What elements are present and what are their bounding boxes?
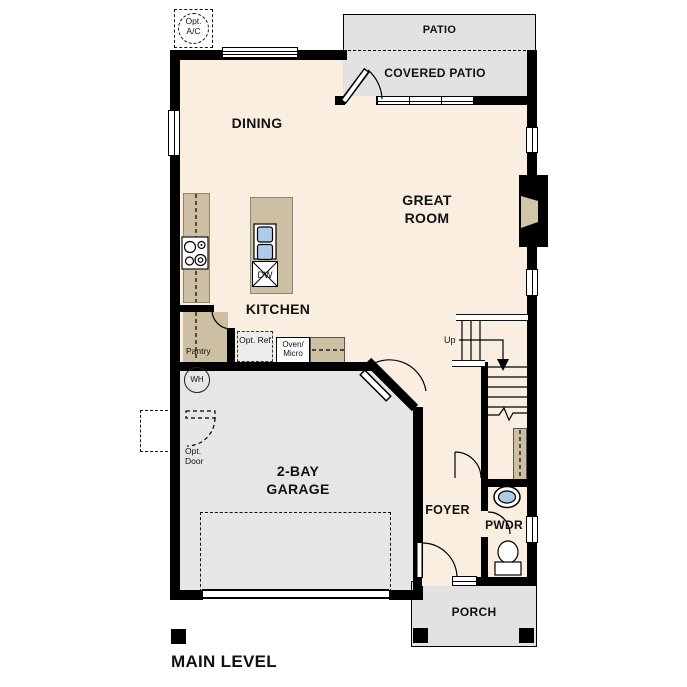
label-opt-ac: Opt. A/C [178,17,209,37]
porch-post-right [519,628,534,643]
dining-top-window [222,47,298,58]
label-covered-patio: COVERED PATIO [343,66,527,82]
label-main-level: MAIN LEVEL [171,651,277,673]
label-up: Up [444,335,456,345]
kitchen-counter-right [310,337,345,363]
wall-powder-west-upper [481,487,488,511]
dining-left-window [168,110,180,156]
great-room-right-window-1 [526,127,538,153]
great-room-patio-window [377,96,474,105]
wall-pantry-east [227,328,235,364]
fireplace [519,175,548,247]
wall-powder-west-lower [481,537,488,585]
label-pantry: Pantry [186,347,211,357]
label-great-room: GREAT ROOM [391,191,463,227]
porch-post-left [413,628,428,643]
front-door-sidelite [452,576,477,586]
label-opt-ref: Opt. Ref [237,336,273,346]
label-kitchen: KITCHEN [238,300,318,318]
window-divider [441,97,442,104]
stair-rail-bottom [452,360,485,367]
powder-right-window [526,516,538,543]
label-dining: DINING [222,114,292,132]
label-oven-micro: Oven/ Micro [276,340,310,358]
front-door-opening [422,577,453,586]
floor-plan: PATIO COVERED PATIO DINING GREAT ROOM KI… [0,0,687,687]
wall-pantry-north [178,305,215,312]
wall-garage-south-right [389,590,423,600]
stair-rail-top [456,314,528,321]
label-patio: PATIO [343,23,536,37]
label-garage: 2-BAY GARAGE [252,462,344,498]
label-porch: PORCH [442,605,506,621]
label-pwdr: PWDR [482,518,526,534]
wall-covered-patio-right [527,50,537,105]
wall-garage-south-left [170,590,203,600]
label-wh: WH [184,375,210,384]
great-room-right-window-2 [526,269,538,296]
kitchen-counter-left [183,193,210,303]
label-dw: DW [252,270,278,280]
plan-corner-marker [171,629,186,644]
wall-closet-south [481,479,537,487]
wall-stair-west [481,362,488,481]
label-opt-door: Opt. Door [185,447,215,467]
coat-closet-shelf [513,428,527,480]
garage-door-opening [200,512,391,592]
label-foyer: FOYER [420,502,475,518]
pantry-door-opening [214,305,227,312]
garage-door-threshold [202,589,389,599]
window-divider [409,97,410,104]
patio-door-opening [345,96,376,105]
